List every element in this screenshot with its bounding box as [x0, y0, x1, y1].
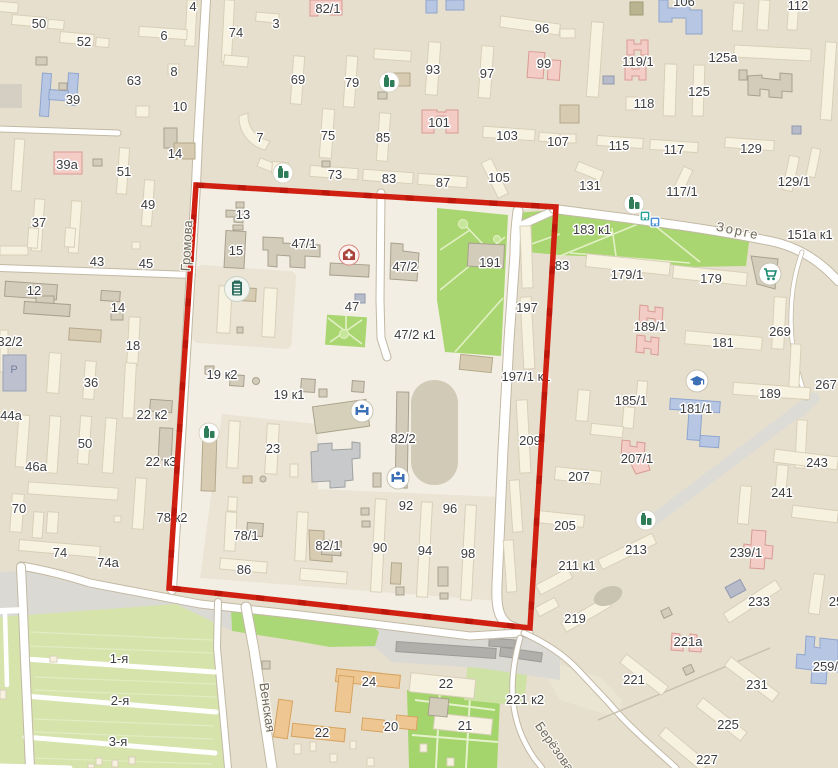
svg-text:117: 117	[664, 142, 685, 157]
svg-text:21: 21	[458, 718, 472, 733]
svg-text:70: 70	[12, 501, 26, 516]
svg-text:106: 106	[673, 0, 695, 9]
svg-text:183 к1: 183 к1	[573, 222, 611, 237]
svg-text:Громова: Громова	[178, 219, 196, 271]
svg-text:181: 181	[712, 335, 734, 350]
svg-text:131: 131	[579, 178, 601, 193]
svg-text:18: 18	[126, 338, 140, 353]
svg-text:94: 94	[418, 543, 432, 558]
svg-text:4: 4	[189, 0, 196, 14]
svg-text:23: 23	[266, 441, 280, 456]
svg-text:46a: 46a	[25, 459, 47, 474]
svg-text:129/1: 129/1	[778, 174, 811, 189]
svg-text:19 к2: 19 к2	[207, 367, 238, 382]
svg-text:207: 207	[568, 469, 590, 484]
svg-text:112: 112	[788, 0, 809, 13]
svg-text:209: 209	[519, 433, 541, 448]
svg-text:47: 47	[345, 299, 359, 314]
svg-text:207/1: 207/1	[621, 451, 654, 466]
svg-text:189: 189	[759, 386, 781, 401]
svg-text:22 к2: 22 к2	[137, 407, 168, 422]
svg-text:15: 15	[229, 243, 243, 258]
svg-text:1-я: 1-я	[110, 651, 129, 666]
svg-text:50: 50	[78, 436, 92, 451]
svg-text:22: 22	[439, 676, 453, 691]
svg-text:19 к1: 19 к1	[274, 387, 305, 402]
svg-text:32/2: 32/2	[0, 334, 23, 349]
svg-text:78/1: 78/1	[233, 528, 258, 543]
svg-text:103: 103	[496, 128, 518, 143]
svg-text:151а к1: 151а к1	[787, 227, 832, 242]
svg-text:87: 87	[436, 175, 450, 190]
svg-text:205: 205	[554, 518, 576, 533]
svg-text:44a: 44a	[0, 408, 22, 423]
svg-text:36: 36	[84, 375, 98, 390]
svg-text:85: 85	[376, 130, 390, 145]
svg-text:47/2 к1: 47/2 к1	[394, 327, 436, 342]
svg-text:233: 233	[748, 594, 770, 609]
svg-text:97: 97	[480, 66, 494, 81]
svg-text:47/2: 47/2	[392, 259, 417, 274]
svg-text:125a: 125a	[709, 50, 739, 65]
svg-text:63: 63	[127, 73, 141, 88]
svg-text:191: 191	[479, 255, 501, 270]
svg-text:225: 225	[717, 717, 739, 732]
svg-text:118: 118	[634, 96, 655, 111]
svg-text:83: 83	[555, 258, 569, 273]
svg-text:43: 43	[90, 254, 104, 269]
svg-text:69: 69	[291, 72, 305, 87]
svg-text:2-я: 2-я	[111, 693, 130, 708]
svg-text:259/1: 259/1	[813, 659, 838, 674]
svg-text:269: 269	[769, 324, 791, 339]
svg-text:105: 105	[488, 170, 510, 185]
svg-text:231: 231	[746, 677, 768, 692]
svg-text:50: 50	[32, 16, 46, 31]
svg-text:6: 6	[160, 28, 167, 43]
svg-text:3-я: 3-я	[109, 734, 128, 749]
svg-text:P: P	[10, 364, 17, 376]
svg-text:117/1: 117/1	[666, 184, 698, 199]
svg-text:181/1: 181/1	[680, 401, 713, 416]
svg-text:82/1: 82/1	[315, 538, 340, 553]
svg-text:96: 96	[443, 501, 457, 516]
svg-text:221 к2: 221 к2	[506, 692, 544, 707]
svg-text:39: 39	[66, 92, 80, 107]
svg-text:7: 7	[256, 130, 263, 145]
svg-text:241: 241	[771, 485, 793, 500]
svg-text:219: 219	[564, 611, 586, 626]
svg-text:211 к1: 211 к1	[558, 558, 595, 573]
svg-text:119/1: 119/1	[622, 54, 654, 69]
svg-text:22: 22	[315, 725, 329, 740]
svg-text:129: 129	[740, 141, 762, 156]
svg-text:12: 12	[27, 283, 41, 298]
svg-text:47/1: 47/1	[291, 236, 316, 251]
svg-text:10: 10	[173, 99, 187, 114]
svg-text:74: 74	[53, 545, 67, 560]
svg-text:197: 197	[516, 300, 538, 315]
svg-text:107: 107	[547, 134, 569, 149]
svg-text:14: 14	[111, 300, 125, 315]
svg-text:101: 101	[428, 115, 450, 130]
svg-text:39a: 39a	[56, 157, 78, 172]
svg-text:25: 25	[829, 594, 838, 609]
svg-text:221: 221	[623, 672, 645, 687]
svg-text:243: 243	[806, 455, 828, 470]
svg-text:8: 8	[170, 64, 177, 79]
svg-text:73: 73	[328, 167, 342, 182]
svg-text:227: 227	[696, 752, 718, 767]
svg-text:22 к3: 22 к3	[146, 454, 177, 469]
svg-text:213: 213	[625, 542, 647, 557]
svg-text:189/1: 189/1	[634, 319, 667, 334]
svg-text:83: 83	[382, 171, 396, 186]
svg-text:99: 99	[537, 56, 551, 71]
svg-text:221a: 221a	[674, 634, 704, 649]
svg-text:267: 267	[815, 377, 837, 392]
svg-text:93: 93	[426, 62, 440, 77]
svg-text:14: 14	[168, 146, 182, 161]
svg-text:49: 49	[141, 197, 155, 212]
svg-text:74: 74	[229, 25, 243, 40]
svg-text:125: 125	[688, 84, 710, 99]
svg-text:13: 13	[236, 207, 250, 222]
svg-text:3: 3	[272, 16, 279, 31]
svg-text:86: 86	[237, 562, 251, 577]
svg-text:51: 51	[117, 164, 131, 179]
svg-text:185/1: 185/1	[615, 393, 648, 408]
svg-text:90: 90	[373, 540, 387, 555]
svg-text:45: 45	[139, 256, 153, 271]
svg-text:75: 75	[321, 128, 335, 143]
svg-text:239/1: 239/1	[730, 545, 763, 560]
svg-text:98: 98	[461, 546, 475, 561]
svg-text:79: 79	[345, 75, 359, 90]
svg-text:74a: 74a	[97, 555, 119, 570]
svg-text:82/1: 82/1	[315, 1, 340, 16]
svg-text:179: 179	[700, 271, 722, 286]
svg-text:20: 20	[384, 719, 398, 734]
svg-text:52: 52	[77, 34, 91, 49]
svg-text:24: 24	[362, 674, 376, 689]
svg-text:92: 92	[399, 498, 413, 513]
svg-text:82/2: 82/2	[390, 431, 415, 446]
svg-text:179/1: 179/1	[611, 267, 644, 282]
svg-text:96: 96	[535, 21, 549, 36]
svg-text:115: 115	[609, 138, 630, 153]
